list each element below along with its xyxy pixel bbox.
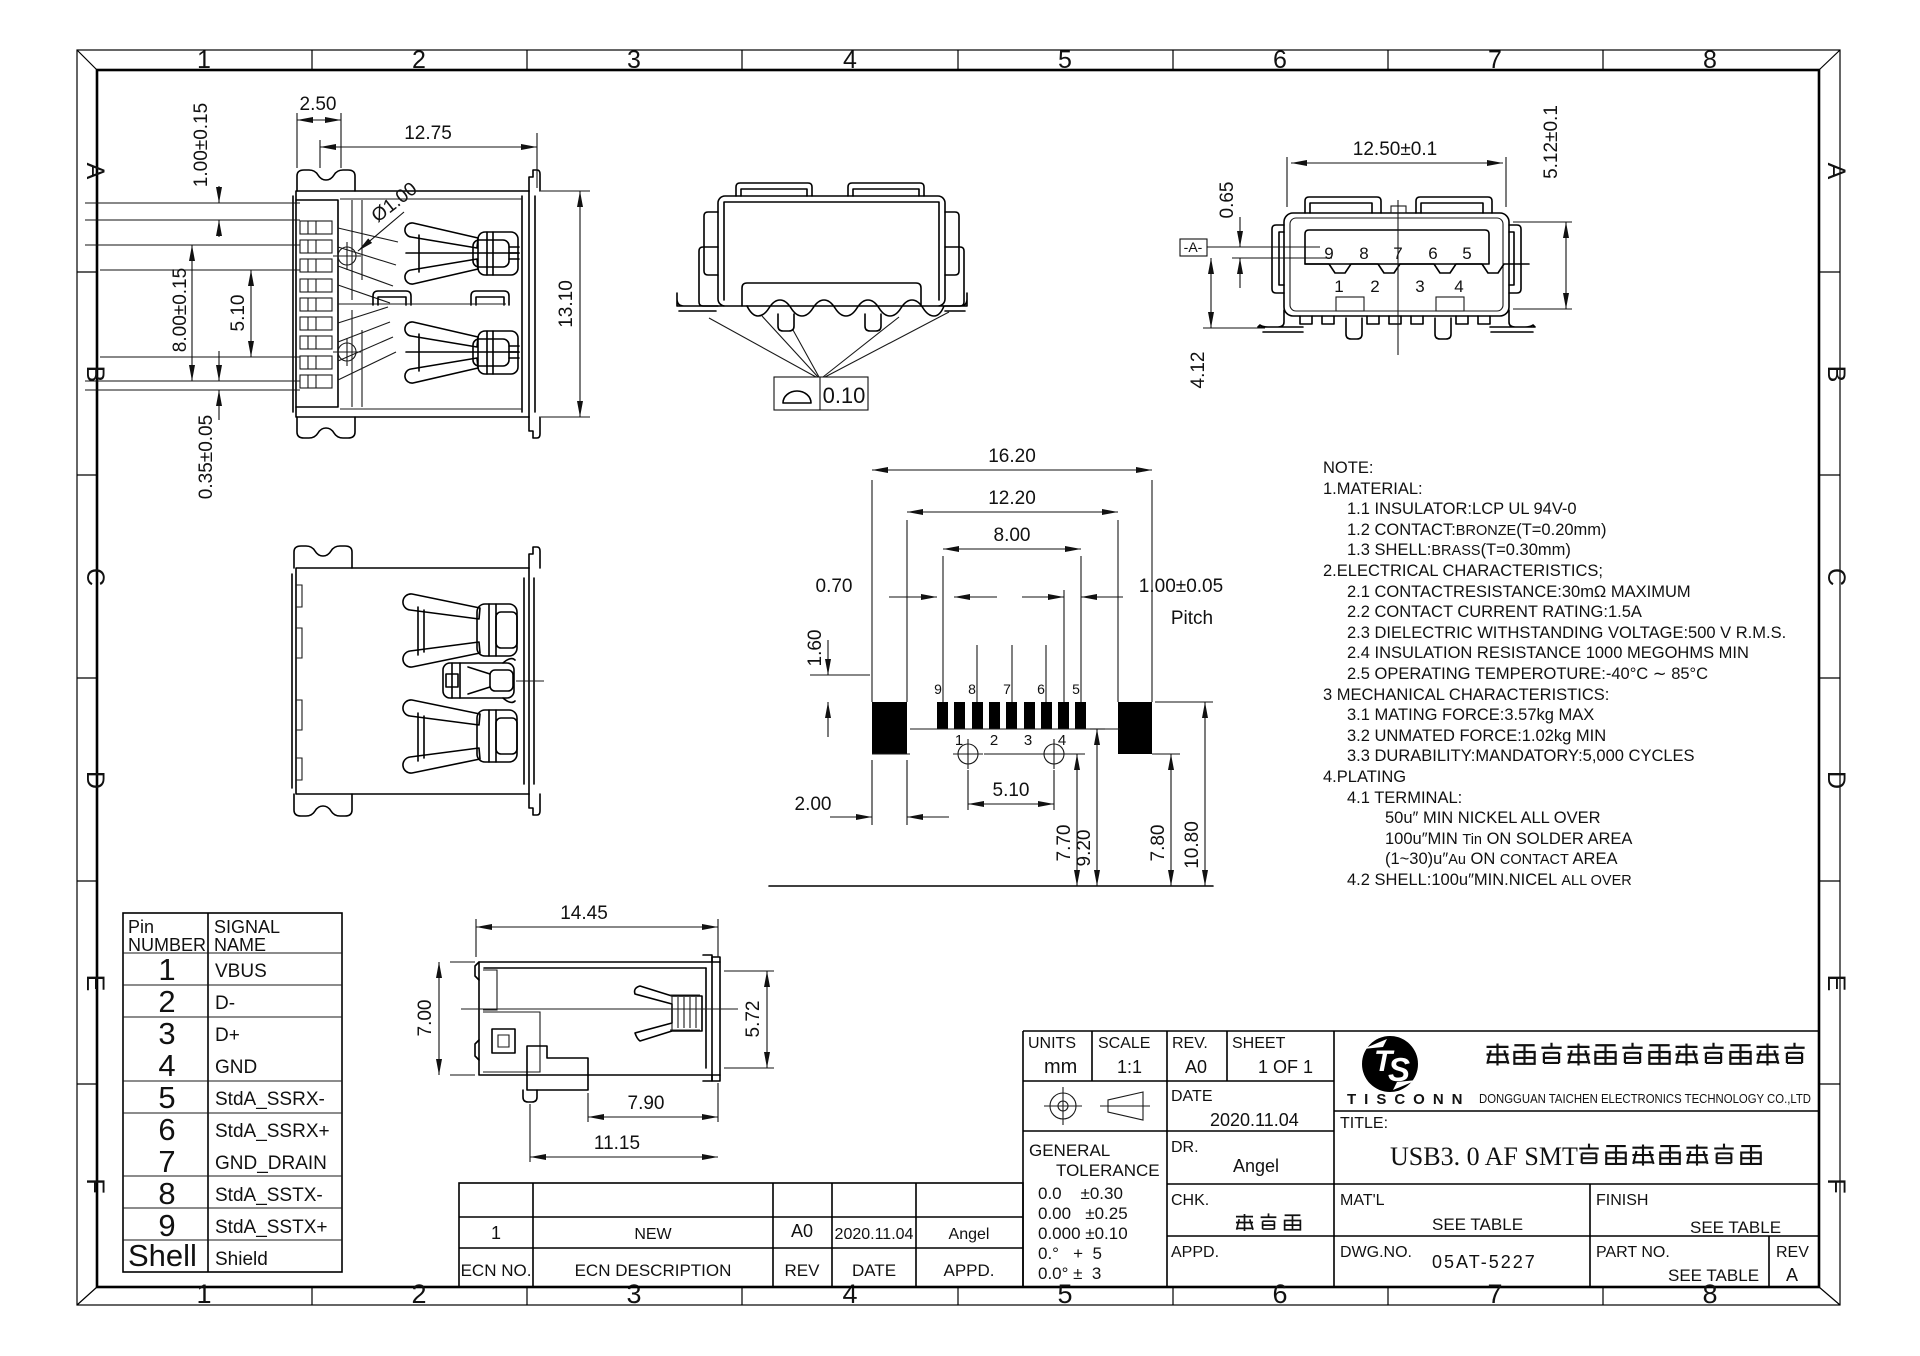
svg-text:D-: D- <box>215 993 235 1014</box>
svg-text:A0: A0 <box>791 1221 813 1241</box>
svg-text:1.00±0.05: 1.00±0.05 <box>1139 576 1223 597</box>
svg-text:50u″ MIN NICKEL ALL OVER: 50u″ MIN NICKEL ALL OVER <box>1385 809 1601 827</box>
svg-text:5.72: 5.72 <box>743 1001 764 1038</box>
svg-text:0.10: 0.10 <box>823 383 866 408</box>
svg-text:StdA_SSTX+: StdA_SSTX+ <box>215 1217 327 1238</box>
svg-text:2: 2 <box>411 1279 426 1309</box>
svg-text:7.70: 7.70 <box>1054 825 1075 862</box>
svg-text:12.50±0.1: 12.50±0.1 <box>1353 139 1437 160</box>
svg-text:0.00 ±0.25: 0.00 ±0.25 <box>1038 1204 1128 1223</box>
svg-text:12.75: 12.75 <box>404 123 452 144</box>
svg-text:2.5 OPERATING TEMPEROTURE:-4: 2.5 OPERATING TEMPEROTURE:-40°C ∼ 85°C <box>1347 665 1708 683</box>
svg-text:4: 4 <box>158 1048 175 1083</box>
svg-text:CHK.: CHK. <box>1171 1192 1209 1209</box>
svg-text:VBUS: VBUS <box>215 961 267 982</box>
svg-text:1:1: 1:1 <box>1117 1057 1142 1077</box>
svg-text:A: A <box>1822 163 1850 180</box>
svg-text:DR.: DR. <box>1171 1139 1199 1156</box>
svg-text:A: A <box>81 163 109 180</box>
svg-text:3: 3 <box>158 1016 175 1051</box>
svg-text:100u″MIN Tin ON SOLDER AREA: 100u″MIN Tin ON SOLDER AREA <box>1385 830 1632 848</box>
svg-text:10.80: 10.80 <box>1182 821 1203 869</box>
svg-text:D: D <box>1822 771 1850 789</box>
svg-text:FINISH: FINISH <box>1596 1192 1648 1209</box>
svg-text:Shell: Shell <box>128 1238 197 1273</box>
svg-text:1: 1 <box>491 1223 501 1243</box>
svg-text:13.10: 13.10 <box>556 280 577 328</box>
svg-text:4.1 TERMINAL:: 4.1 TERMINAL: <box>1347 789 1462 807</box>
svg-text:4.12: 4.12 <box>1188 352 1209 389</box>
svg-text:7.80: 7.80 <box>1148 825 1169 862</box>
svg-text:2: 2 <box>1370 277 1379 296</box>
svg-text:DATE: DATE <box>852 1261 896 1280</box>
svg-text:5.10: 5.10 <box>228 295 249 332</box>
svg-text:F: F <box>81 1178 109 1193</box>
svg-text:-A-: -A- <box>1184 239 1203 255</box>
svg-text:2020.11.04: 2020.11.04 <box>1210 1110 1299 1130</box>
svg-text:3: 3 <box>1024 732 1032 749</box>
svg-text:0.000 ±0.10: 0.000 ±0.10 <box>1038 1224 1128 1243</box>
svg-text:7: 7 <box>1487 1279 1502 1309</box>
svg-text:APPD.: APPD. <box>943 1261 994 1280</box>
svg-text:C: C <box>81 568 109 586</box>
svg-text:6: 6 <box>1428 244 1437 263</box>
svg-text:D+: D+ <box>215 1025 240 1046</box>
svg-text:ECN DESCRIPTION: ECN DESCRIPTION <box>575 1261 732 1280</box>
svg-text:5: 5 <box>1072 681 1080 697</box>
svg-text:1: 1 <box>196 1279 211 1309</box>
svg-text:GENERAL: GENERAL <box>1029 1141 1110 1160</box>
svg-text:8.00: 8.00 <box>994 525 1031 546</box>
svg-text:3.1 MATING FORCE:3.57kg MAX: 3.1 MATING FORCE:3.57kg MAX <box>1347 706 1594 724</box>
svg-text:1.1 INSULATOR:LCP UL 94V-0: 1.1 INSULATOR:LCP UL 94V-0 <box>1347 500 1577 518</box>
svg-text:0.35±0.05: 0.35±0.05 <box>196 415 217 499</box>
svg-text:11.15: 11.15 <box>594 1133 640 1154</box>
svg-text:SEE TABLE: SEE TABLE <box>1668 1266 1759 1285</box>
svg-text:1.2 CONTACT:BRONZE(T=0.20mm): 1.2 CONTACT:BRONZE(T=0.20mm) <box>1347 521 1607 539</box>
svg-text:2.1 CONTACTRESISTANCE:30mΩ M: 2.1 CONTACTRESISTANCE:30mΩ MAXIMUM <box>1347 583 1691 601</box>
svg-text:7: 7 <box>1003 681 1011 697</box>
svg-text:SCALE: SCALE <box>1098 1035 1150 1052</box>
svg-text:2.3 DIELECTRIC WITHSTANDING: 2.3 DIELECTRIC WITHSTANDING VOLTAGE:500 … <box>1347 624 1786 642</box>
svg-text:DWG.NO.: DWG.NO. <box>1340 1244 1412 1261</box>
svg-text:1.60: 1.60 <box>805 630 826 667</box>
svg-text:3 MECHANICAL CHARACTERISTICS: 3 MECHANICAL CHARACTERISTICS: <box>1323 686 1609 704</box>
svg-text:Pitch: Pitch <box>1171 608 1213 629</box>
svg-text:A0: A0 <box>1185 1057 1207 1077</box>
svg-text:REV.: REV. <box>1172 1035 1208 1052</box>
svg-text:8: 8 <box>1703 46 1717 74</box>
svg-text:F: F <box>1822 1178 1850 1193</box>
svg-text:A: A <box>1786 1265 1798 1285</box>
svg-text:12.20: 12.20 <box>988 488 1036 509</box>
svg-text:6: 6 <box>1272 1279 1287 1309</box>
svg-text:Angel: Angel <box>949 1226 990 1243</box>
svg-text:UNITS: UNITS <box>1028 1035 1076 1052</box>
svg-text:3: 3 <box>627 46 641 74</box>
svg-text:8: 8 <box>158 1176 175 1211</box>
svg-text:8.00±0.15: 8.00±0.15 <box>170 268 191 352</box>
svg-text:(1~30)u″Au ON CONTACT AREA: (1~30)u″Au ON CONTACT AREA <box>1385 850 1617 868</box>
svg-text:14.45: 14.45 <box>560 903 608 924</box>
svg-text:REV: REV <box>785 1261 821 1280</box>
svg-text:0.70: 0.70 <box>816 576 853 597</box>
svg-text:1.MATERIAL:: 1.MATERIAL: <box>1323 480 1423 498</box>
svg-text:TITLE:: TITLE: <box>1340 1115 1388 1132</box>
svg-text:REV: REV <box>1776 1244 1809 1261</box>
svg-text:0.0° ± 3: 0.0° ± 3 <box>1038 1264 1101 1283</box>
svg-text:TOLERANCE: TOLERANCE <box>1056 1161 1160 1180</box>
svg-text:9: 9 <box>1324 244 1333 263</box>
svg-text:2: 2 <box>158 984 175 1019</box>
svg-text:6: 6 <box>1037 681 1045 697</box>
svg-text:1.00±0.15: 1.00±0.15 <box>191 103 212 187</box>
svg-text:2.50: 2.50 <box>300 94 337 115</box>
svg-text:NOTE:: NOTE: <box>1323 459 1373 477</box>
svg-text:E: E <box>1822 975 1850 992</box>
svg-text:5: 5 <box>1462 244 1471 263</box>
svg-text:PART NO.: PART NO. <box>1596 1244 1670 1261</box>
svg-text:SEE TABLE: SEE TABLE <box>1690 1218 1781 1237</box>
svg-text:StdA_SSTX-: StdA_SSTX- <box>215 1185 323 1206</box>
svg-text:9.20: 9.20 <box>1074 830 1095 867</box>
svg-text:Shield: Shield <box>215 1249 268 1270</box>
svg-text:NAME: NAME <box>214 935 266 955</box>
svg-text:4: 4 <box>1454 277 1463 296</box>
svg-text:mm: mm <box>1044 1056 1077 1078</box>
svg-text:4.2 SHELL:100u″MIN.NICEL ALL: 4.2 SHELL:100u″MIN.NICEL ALL OVER <box>1347 871 1632 889</box>
svg-text:1 OF 1: 1 OF 1 <box>1258 1057 1313 1077</box>
svg-text:7: 7 <box>1488 46 1502 74</box>
svg-text:1: 1 <box>1334 277 1343 296</box>
svg-text:4: 4 <box>843 46 857 74</box>
svg-text:2020.11.04: 2020.11.04 <box>835 1226 914 1243</box>
svg-text:2.4 INSULATION RESISTANCE 1: 2.4 INSULATION RESISTANCE 1000 MEGOHMS M… <box>1347 644 1749 662</box>
svg-text:USB3. 0 AF SMT: USB3. 0 AF SMT <box>1390 1142 1578 1171</box>
svg-text:Angel: Angel <box>1233 1156 1279 1176</box>
svg-text:7.90: 7.90 <box>628 1093 665 1114</box>
svg-text:E: E <box>81 975 109 992</box>
svg-text:2.ELECTRICAL CHARACTERISTICS;: 2.ELECTRICAL CHARACTERISTICS; <box>1323 562 1603 580</box>
svg-text:C: C <box>1822 568 1850 586</box>
svg-text:ECN NO.: ECN NO. <box>461 1261 532 1280</box>
svg-text:GND_DRAIN: GND_DRAIN <box>215 1153 327 1174</box>
svg-text:3: 3 <box>1415 277 1424 296</box>
svg-text:StdA_SSRX+: StdA_SSRX+ <box>215 1121 330 1142</box>
svg-text:9: 9 <box>934 681 942 697</box>
svg-text:5.12±0.1: 5.12±0.1 <box>1541 105 1562 179</box>
svg-text:NEW: NEW <box>634 1226 672 1243</box>
svg-text:2: 2 <box>990 732 998 749</box>
svg-text:8: 8 <box>1359 244 1368 263</box>
svg-text:SEE TABLE: SEE TABLE <box>1432 1215 1523 1234</box>
svg-text:5.10: 5.10 <box>993 780 1030 801</box>
svg-text:3.2 UNMATED FORCE:1.02kg MI: 3.2 UNMATED FORCE:1.02kg MIN <box>1347 727 1606 745</box>
svg-text:4.PLATING: 4.PLATING <box>1323 768 1406 786</box>
svg-text:D: D <box>81 771 109 789</box>
svg-text:6: 6 <box>1273 46 1287 74</box>
svg-text:APPD.: APPD. <box>1171 1244 1219 1261</box>
svg-text:GND: GND <box>215 1057 257 1078</box>
svg-text:5: 5 <box>158 1080 175 1115</box>
svg-text:7.00: 7.00 <box>415 1000 436 1037</box>
svg-text:2.00: 2.00 <box>795 794 832 815</box>
svg-text:4: 4 <box>1058 732 1066 749</box>
svg-text:1: 1 <box>158 952 175 987</box>
svg-text:2: 2 <box>412 46 426 74</box>
svg-text:5: 5 <box>1058 46 1072 74</box>
svg-text:MAT'L: MAT'L <box>1340 1192 1385 1209</box>
svg-text:SIGNAL: SIGNAL <box>214 917 280 937</box>
svg-text:5: 5 <box>1057 1279 1072 1309</box>
svg-text:Pin: Pin <box>128 917 154 937</box>
svg-text:DONGGUAN TAICHEN ELECTRONICS: DONGGUAN TAICHEN ELECTRONICS TECHNOLOGY … <box>1479 1091 1811 1106</box>
svg-text:4: 4 <box>842 1279 857 1309</box>
svg-text:0.65: 0.65 <box>1217 182 1238 219</box>
svg-text:1.3 SHELL:BRASS(T=0.30mm): 1.3 SHELL:BRASS(T=0.30mm) <box>1347 541 1571 559</box>
svg-text:6: 6 <box>158 1112 175 1147</box>
svg-text:B: B <box>81 366 109 383</box>
svg-text:2.2 CONTACT CURRENT RATING:: 2.2 CONTACT CURRENT RATING:1.5A <box>1347 603 1642 621</box>
svg-text:TISCONN: TISCONN <box>1347 1091 1471 1108</box>
svg-text:0.0 ±0.30: 0.0 ±0.30 <box>1038 1184 1123 1203</box>
svg-text:7: 7 <box>158 1144 175 1179</box>
svg-text:0.° + 5: 0.° + 5 <box>1038 1244 1102 1263</box>
svg-text:3.3 DURABILITY:MANDATORY:5,00: 3.3 DURABILITY:MANDATORY:5,000 CYCLES <box>1347 747 1695 765</box>
svg-text:05AT-5227: 05AT-5227 <box>1432 1252 1537 1272</box>
svg-text:3: 3 <box>626 1279 641 1309</box>
svg-text:SHEET: SHEET <box>1232 1035 1286 1052</box>
svg-text:StdA_SSRX-: StdA_SSRX- <box>215 1089 325 1110</box>
svg-text:B: B <box>1822 366 1850 383</box>
svg-text:1: 1 <box>197 46 211 74</box>
svg-text:8: 8 <box>968 681 976 697</box>
svg-text:DATE: DATE <box>1171 1088 1212 1105</box>
svg-text:16.20: 16.20 <box>988 446 1036 467</box>
